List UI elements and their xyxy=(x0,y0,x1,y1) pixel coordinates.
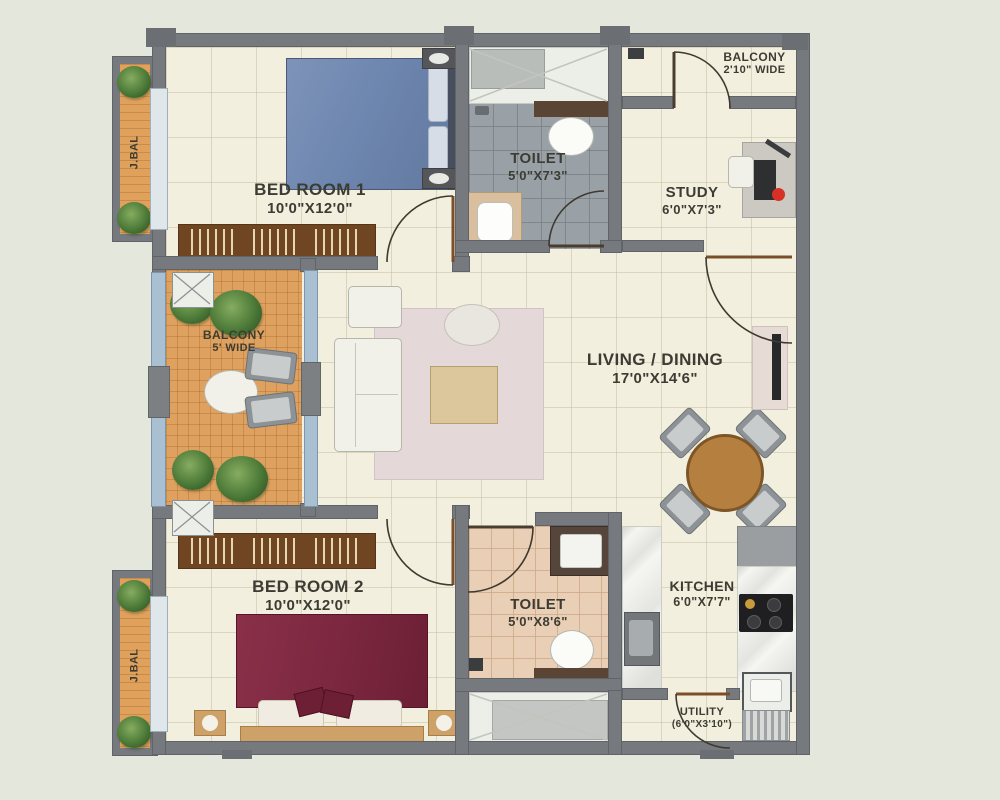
room-dims: 6'0"X7'7" xyxy=(630,595,774,610)
wall-post xyxy=(600,26,630,45)
wall-post xyxy=(222,750,252,759)
room-name: BED ROOM 1 xyxy=(220,180,400,200)
room-name: LIVING / DINING xyxy=(560,350,750,370)
planter-icon xyxy=(117,716,151,748)
wall xyxy=(455,40,469,265)
dining-table xyxy=(686,434,764,512)
plant-icon xyxy=(216,456,268,502)
shower-base xyxy=(560,534,602,568)
room-name: J.BAL xyxy=(129,122,142,182)
wall xyxy=(152,33,810,47)
study-label: STUDY 6'0"X7'3" xyxy=(612,184,772,217)
jbal-bottom-label: J.BAL xyxy=(129,635,142,695)
pouf xyxy=(444,304,500,346)
planter-icon xyxy=(117,580,151,612)
wall xyxy=(622,688,668,700)
kitchen-label: KITCHEN 6'0"X7'7" xyxy=(630,578,774,609)
wall-post xyxy=(782,34,808,50)
nightstand xyxy=(194,710,226,736)
room-name: BALCONY xyxy=(692,50,817,64)
tv-screen-icon xyxy=(772,334,781,400)
window-handle xyxy=(148,366,170,418)
room-dims: (6'0"X3'10") xyxy=(642,719,762,731)
armchair xyxy=(348,286,402,328)
wall xyxy=(622,96,674,109)
room-dims: 5'0"X7'3" xyxy=(468,168,608,183)
room-name: BALCONY xyxy=(172,328,296,342)
ac-unit-icon xyxy=(628,48,644,59)
balcony-left-label: BALCONY 5' WIDE xyxy=(172,328,296,355)
wall xyxy=(455,505,469,755)
room-dims: 5'0"X8'6" xyxy=(468,614,608,629)
duct-box xyxy=(172,272,214,308)
toilet2-label: TOILET 5'0"X8'6" xyxy=(468,596,608,629)
wall-post xyxy=(444,26,474,45)
wardrobe xyxy=(178,533,376,569)
wall xyxy=(455,678,622,692)
window xyxy=(150,596,168,732)
room-name: UTILITY xyxy=(642,706,762,719)
bedroom2-label: BED ROOM 2 10'0"X12'0" xyxy=(218,577,398,615)
bed2-base xyxy=(240,726,424,742)
wall xyxy=(726,688,740,700)
wall-post xyxy=(146,28,176,47)
wall xyxy=(152,256,378,270)
toilet2-wc xyxy=(550,630,594,670)
tv-unit xyxy=(752,326,788,410)
room-name: J.BAL xyxy=(129,635,142,695)
wall xyxy=(608,512,622,692)
kitchen-sink-bowl xyxy=(629,620,653,656)
room-dims: 10'0"X12'0" xyxy=(220,200,400,218)
wall xyxy=(600,240,622,253)
wall xyxy=(608,690,622,755)
room-name: TOILET xyxy=(468,150,608,168)
wall xyxy=(729,96,796,109)
room-name: BED ROOM 2 xyxy=(218,577,398,597)
toilet1-counter xyxy=(534,101,608,117)
wall-post xyxy=(700,750,734,759)
bedroom1-label: BED ROOM 1 10'0"X12'0" xyxy=(220,180,400,218)
jbal-top-label: J.BAL xyxy=(129,122,142,182)
room-dims: 5' WIDE xyxy=(172,342,296,355)
toilet2-fixture xyxy=(468,658,483,671)
planter-icon xyxy=(117,202,151,234)
sliding-door-handle xyxy=(301,362,321,416)
desk-accessory xyxy=(772,188,785,201)
kitchen-shelf xyxy=(737,526,798,568)
bed1-pillow xyxy=(428,64,448,122)
living-label: LIVING / DINING 17'0"X14'6" xyxy=(560,350,750,388)
utility-label: UTILITY (6'0"X3'10") xyxy=(642,706,762,731)
coffee-table xyxy=(430,366,498,424)
balcony-chair xyxy=(244,391,298,429)
room-dims: 10'0"X12'0" xyxy=(218,597,398,615)
toilet1-label: TOILET 5'0"X7'3" xyxy=(468,150,608,183)
planter-icon xyxy=(117,66,151,98)
wardrobe xyxy=(178,224,376,260)
wall xyxy=(452,256,470,272)
loft-shelf xyxy=(471,49,545,89)
room-name: TOILET xyxy=(468,596,608,614)
room-dims: 2'10" WIDE xyxy=(692,64,817,77)
window xyxy=(150,88,168,230)
wall xyxy=(622,240,704,252)
wall xyxy=(608,40,622,250)
wall xyxy=(796,33,810,755)
sofa xyxy=(334,338,402,452)
nightstand xyxy=(422,48,456,69)
room-name: KITCHEN xyxy=(630,578,774,595)
plant-icon xyxy=(172,450,214,490)
washbasin-bowl xyxy=(477,202,513,242)
shower-icon xyxy=(475,106,489,115)
room-dims: 17'0"X14'6" xyxy=(560,370,750,388)
ledge-slab xyxy=(492,700,608,740)
floor-plan: BED ROOM 1 10'0"X12'0" TOILET 5'0"X7'3" … xyxy=(0,0,1000,800)
nightstand xyxy=(422,168,456,189)
balcony-top-label: BALCONY 2'10" WIDE xyxy=(692,50,817,77)
room-name: STUDY xyxy=(612,184,772,202)
duct-box xyxy=(172,500,214,536)
utility-sink-bowl xyxy=(750,679,782,702)
room-dims: 6'0"X7'3" xyxy=(612,202,772,217)
wall xyxy=(455,240,550,253)
